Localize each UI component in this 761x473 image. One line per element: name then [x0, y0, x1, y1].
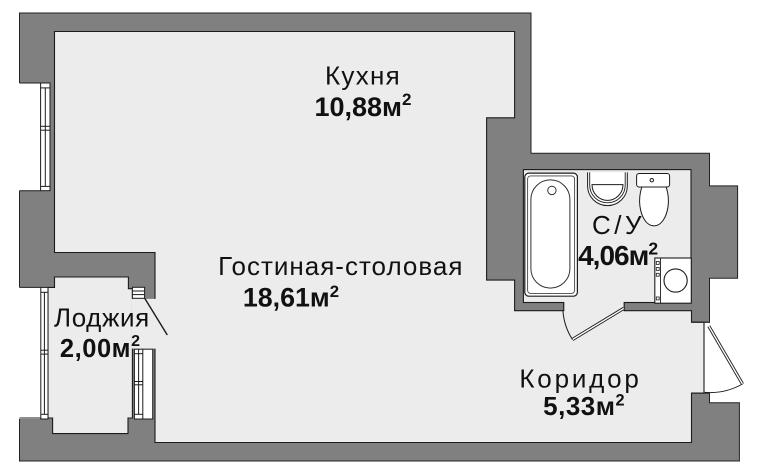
svg-text:18,61м2: 18,61м2 [243, 282, 339, 313]
svg-text:4,06м2: 4,06м2 [578, 239, 658, 272]
svg-text:Коридор: Коридор [519, 364, 641, 394]
svg-text:2,00м2: 2,00м2 [60, 333, 141, 363]
svg-text:Кухня: Кухня [325, 60, 401, 90]
svg-text:10,88м2: 10,88м2 [314, 90, 411, 122]
svg-text:5,33м2: 5,33м2 [543, 391, 625, 421]
svg-text:Лоджия: Лоджия [54, 303, 150, 333]
svg-text:С/У: С/У [592, 210, 645, 240]
svg-text:Гостиная-столовая: Гостиная-столовая [218, 251, 463, 281]
